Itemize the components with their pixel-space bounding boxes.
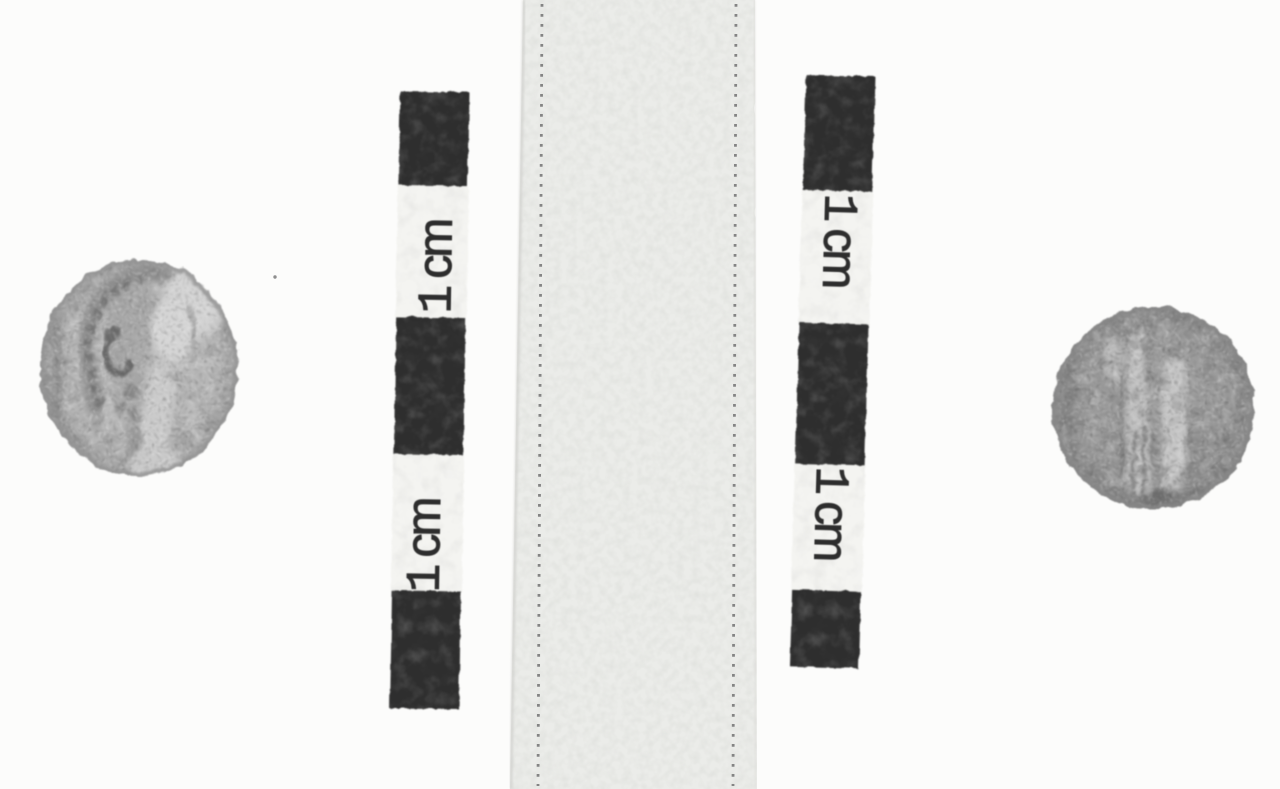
svg-text:1cm: 1cm bbox=[800, 466, 860, 560]
svg-text:1cm: 1cm bbox=[408, 220, 467, 314]
svg-text:1cm: 1cm bbox=[396, 499, 455, 593]
svg-text:1cm: 1cm bbox=[808, 193, 868, 287]
